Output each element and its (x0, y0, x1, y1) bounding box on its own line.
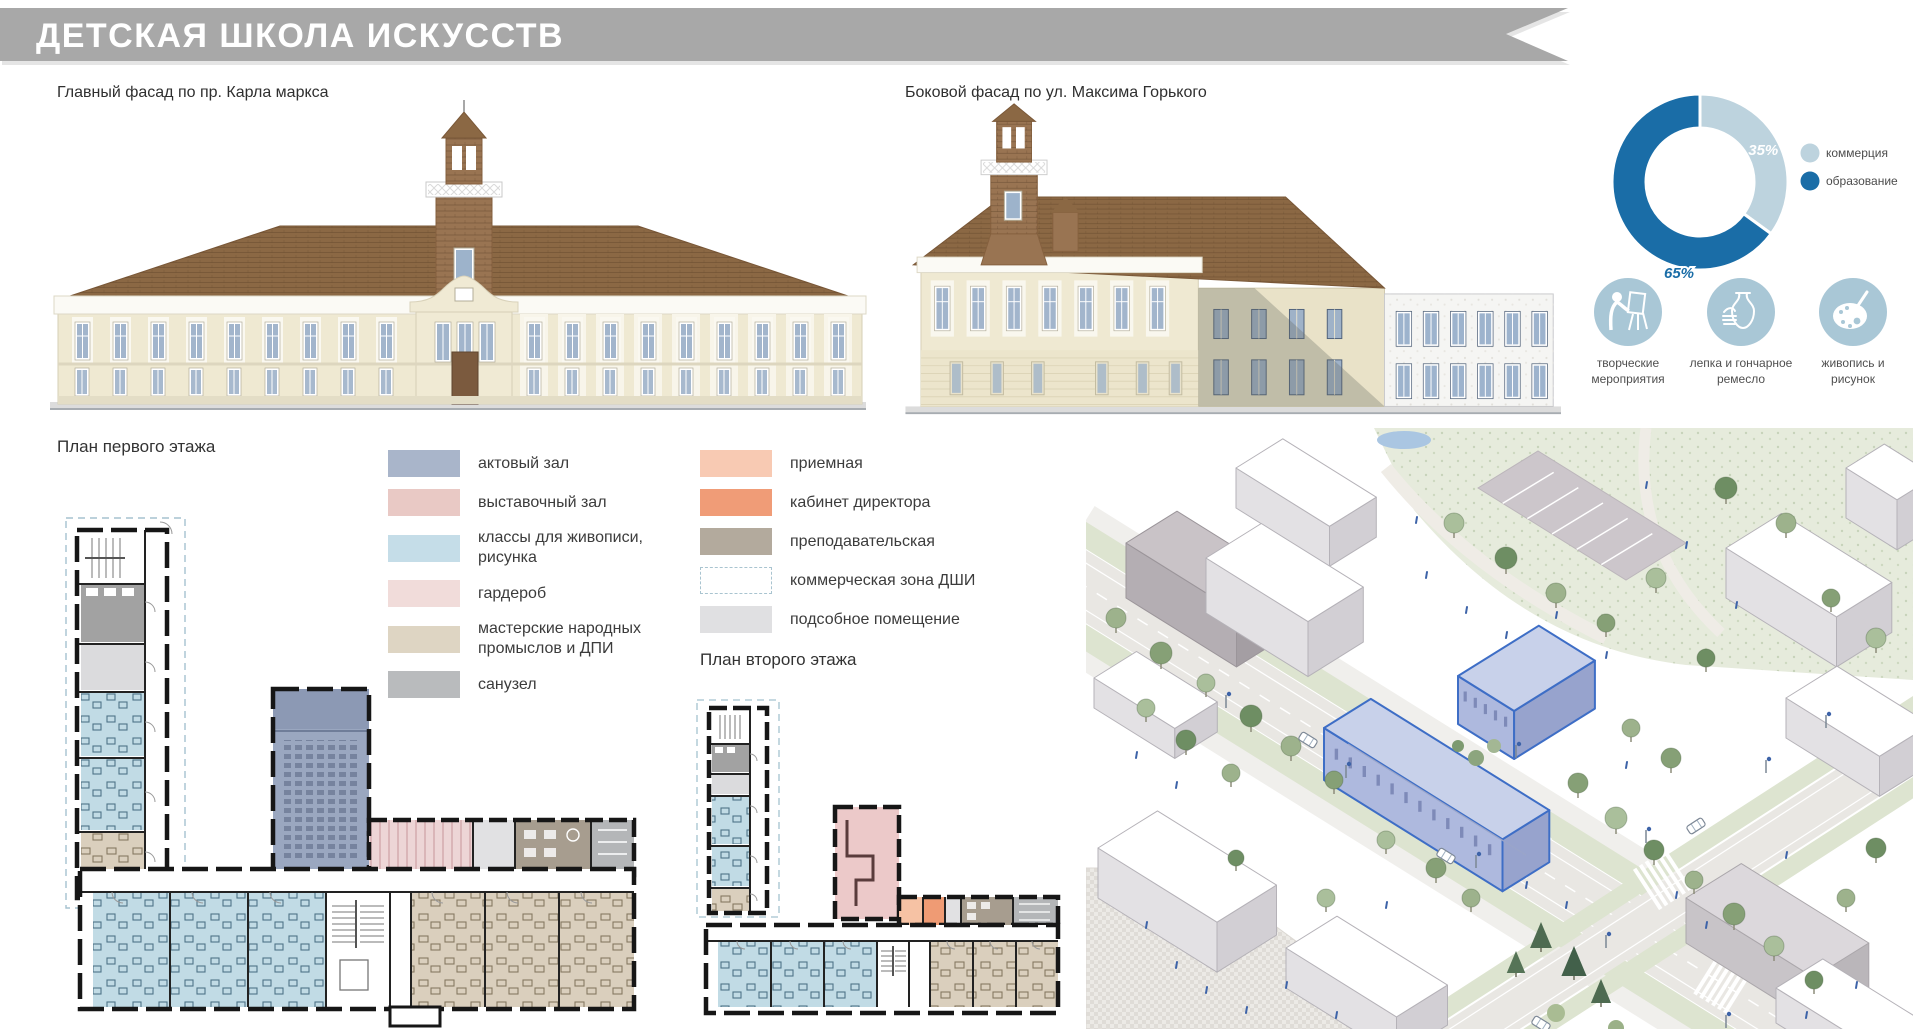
legend-label: преподавательская (790, 532, 935, 552)
site-plan-isometric (1086, 428, 1913, 1029)
legend-row: преподавательская (700, 528, 1030, 555)
legend-label: подсобное помещение (790, 610, 960, 630)
legend-right-column: приемнаякабинет директорапреподавательск… (700, 450, 1030, 645)
legend-row: кабинет директора (700, 489, 1030, 516)
title-ribbon: ДЕТСКАЯ ШКОЛА ИСКУССТВ (0, 0, 1600, 70)
legend-label: коммерческая зона ДШИ (790, 571, 975, 591)
side-facade-drawing (895, 100, 1585, 420)
second-floor-plan-drawing (692, 694, 1064, 1024)
first-floor-plan-title: План первого этажа (57, 437, 215, 457)
second-floor-plan-title: План второго этажа (700, 650, 857, 670)
svg-text:35%: 35% (1748, 142, 1778, 159)
legend-row: актовый зал (388, 450, 688, 477)
usage-donut-chart: 35%65%коммерцияобразование (1595, 78, 1913, 293)
page-title: ДЕТСКАЯ ШКОЛА ИСКУССТВ (36, 17, 564, 55)
activity-label: живопись и рисунок (1821, 355, 1884, 387)
palette-icon (1819, 278, 1887, 346)
legend-label: приемная (790, 454, 863, 474)
legend-swatch (700, 450, 772, 477)
legend-swatch (700, 528, 772, 555)
first-floor-plan-drawing (52, 492, 682, 1029)
svg-text:коммерция: коммерция (1826, 146, 1888, 160)
legend-label: кабинет директора (790, 493, 930, 513)
pottery-icon (1707, 278, 1775, 346)
activity-label: творческие мероприятия (1591, 355, 1664, 387)
legend-label: актовый зал (478, 454, 569, 474)
easel-icon (1594, 278, 1662, 346)
legend-swatch (700, 606, 772, 633)
legend-swatch (700, 567, 772, 594)
svg-text:образование: образование (1826, 174, 1898, 188)
legend-row: коммерческая зона ДШИ (700, 567, 1030, 594)
activity-label: лепка и гончарное ремесло (1690, 355, 1793, 387)
activity-painting: живопись и рисунок (1778, 278, 1913, 387)
legend-swatch (388, 450, 460, 477)
legend-row: подсобное помещение (700, 606, 1030, 633)
legend-row: приемная (700, 450, 1030, 477)
main-facade-drawing (50, 100, 870, 420)
legend-swatch (700, 489, 772, 516)
presentation-board: ДЕТСКАЯ ШКОЛА ИСКУССТВ Главный фасад по … (0, 0, 1913, 1029)
